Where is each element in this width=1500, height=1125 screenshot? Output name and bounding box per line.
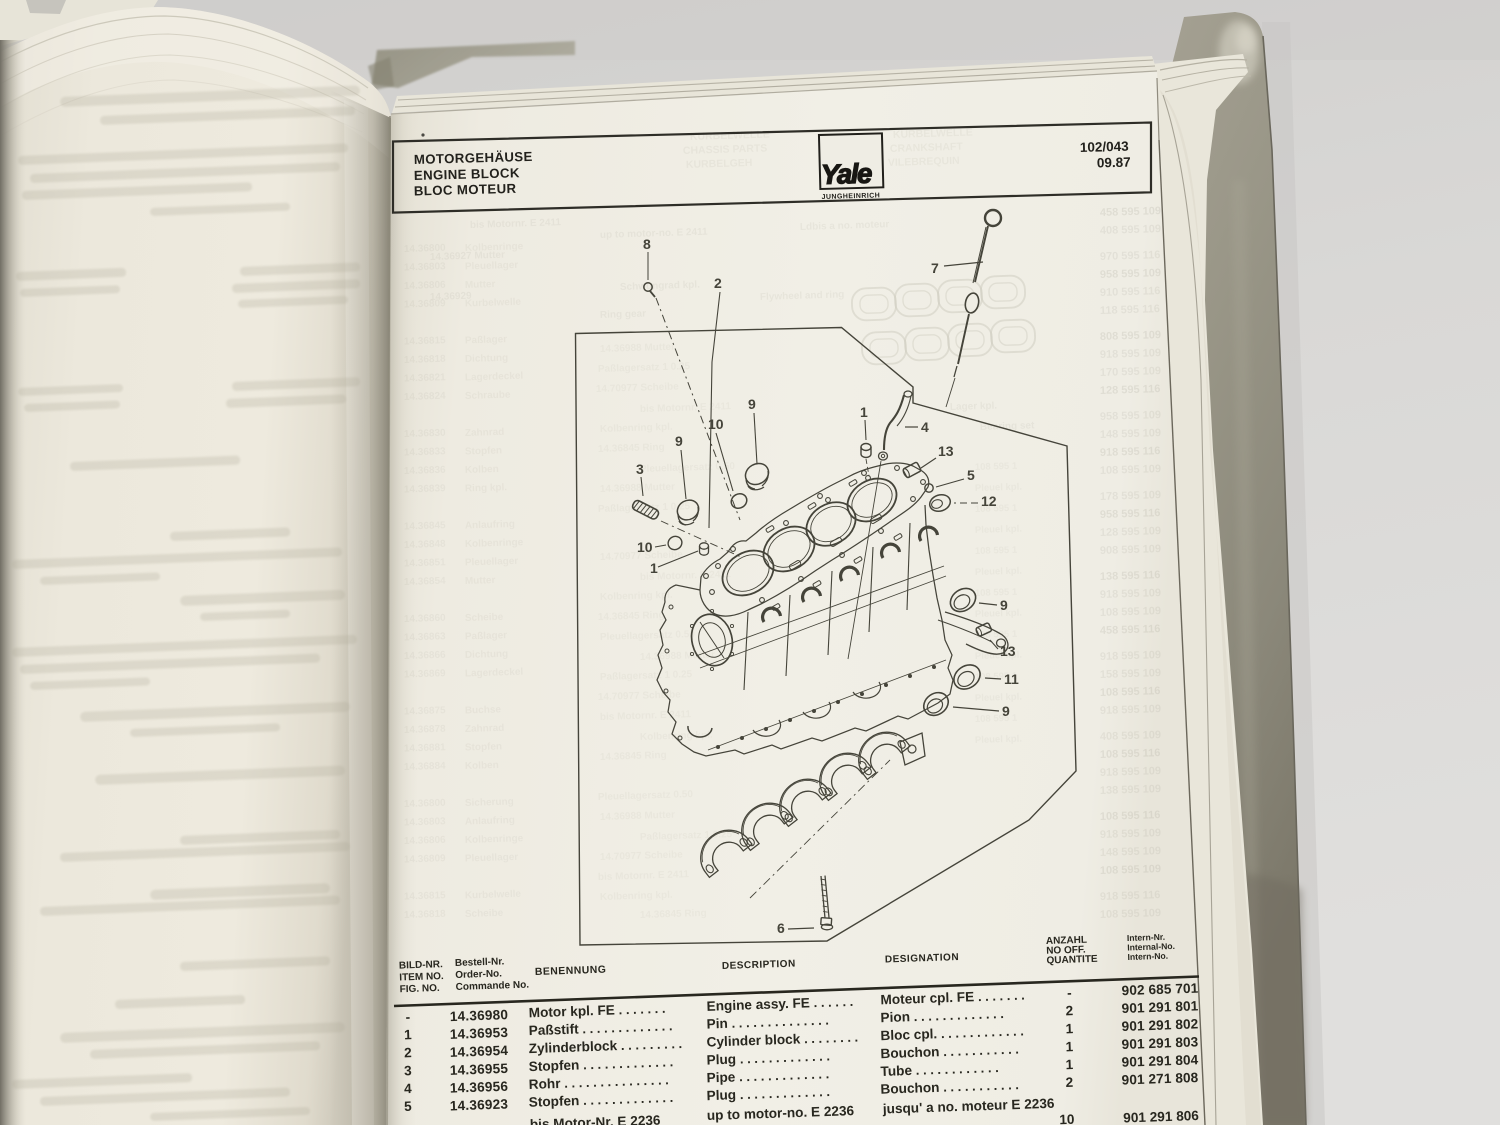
svg-text:14.36929: 14.36929 xyxy=(430,291,472,303)
svg-text:918 595 116: 918 595 116 xyxy=(1100,445,1161,459)
svg-text:9: 9 xyxy=(1000,597,1008,613)
svg-text:Scheibe: Scheibe xyxy=(465,908,504,920)
svg-text:14.36803: 14.36803 xyxy=(404,816,446,828)
svg-text:4: 4 xyxy=(404,1081,413,1096)
svg-text:Zahnrad: Zahnrad xyxy=(465,427,505,439)
svg-text:118 595 116: 118 595 116 xyxy=(1100,303,1160,317)
svg-text:Yale: Yale xyxy=(821,158,873,190)
svg-text:9: 9 xyxy=(748,396,756,412)
svg-text:14.36845 Ring: 14.36845 Ring xyxy=(600,750,667,763)
svg-text:178 595 109: 178 595 109 xyxy=(1100,489,1162,503)
svg-text:902 685 701: 902 685 701 xyxy=(1121,981,1199,999)
svg-text:908 595 109: 908 595 109 xyxy=(1100,543,1162,557)
svg-text:14.36815: 14.36815 xyxy=(404,335,446,347)
svg-text:14.36845 Ring: 14.36845 Ring xyxy=(640,908,707,921)
svg-text:108 595 1: 108 595 1 xyxy=(975,461,1018,473)
svg-text:128 595 116: 128 595 116 xyxy=(1100,383,1161,397)
svg-text:918 595 109: 918 595 109 xyxy=(1100,587,1162,601)
svg-text:14.36854: 14.36854 xyxy=(404,576,446,588)
svg-text:Kurbelwelle: Kurbelwelle xyxy=(465,889,522,902)
svg-text:14.36806: 14.36806 xyxy=(404,835,446,847)
svg-text:14.36851: 14.36851 xyxy=(404,557,446,569)
svg-text:BILD-NR.: BILD-NR. xyxy=(399,959,443,971)
svg-text:-: - xyxy=(405,1009,410,1024)
svg-text:Dichtung: Dichtung xyxy=(465,649,509,661)
svg-text:14.36818: 14.36818 xyxy=(404,909,446,921)
svg-text:108 595 109: 108 595 109 xyxy=(1100,863,1162,877)
svg-text:Pleuel kpl.: Pleuel kpl. xyxy=(975,524,1022,536)
svg-text:14.36833: 14.36833 xyxy=(404,446,446,458)
svg-text:901 291 801: 901 291 801 xyxy=(1121,998,1199,1016)
svg-text:6: 6 xyxy=(777,920,785,936)
svg-text:Lagerdeckel: Lagerdeckel xyxy=(465,371,524,384)
svg-text:Sicherung: Sicherung xyxy=(465,796,514,809)
svg-text:Anlaufring: Anlaufring xyxy=(465,519,515,532)
svg-text:1: 1 xyxy=(860,404,868,420)
svg-text:901 291 804: 901 291 804 xyxy=(1121,1052,1199,1070)
svg-text:158 595 109: 158 595 109 xyxy=(1100,667,1162,681)
svg-text:970 595 116: 970 595 116 xyxy=(1100,249,1161,263)
svg-text:918 595 109: 918 595 109 xyxy=(1100,765,1162,779)
svg-text:10: 10 xyxy=(708,416,724,432)
svg-text:Dichtung: Dichtung xyxy=(465,353,509,365)
svg-text:VILEBREQUIN: VILEBREQUIN xyxy=(888,155,960,169)
svg-text:108 595 1: 108 595 1 xyxy=(975,545,1018,557)
svg-text:958 595 109: 958 595 109 xyxy=(1100,267,1162,281)
svg-text:Lagerdeckel: Lagerdeckel xyxy=(465,667,524,680)
svg-text:09.87: 09.87 xyxy=(1097,155,1131,171)
svg-text:3: 3 xyxy=(636,461,644,477)
svg-text:108 595 1: 108 595 1 xyxy=(975,587,1018,599)
svg-text:108 595 109: 108 595 109 xyxy=(1100,605,1162,619)
svg-text:901 291 803: 901 291 803 xyxy=(1121,1034,1199,1052)
svg-text:Schraube: Schraube xyxy=(465,390,511,402)
svg-text:14.36845 Ring: 14.36845 Ring xyxy=(598,610,665,623)
svg-text:2: 2 xyxy=(1065,1003,1074,1018)
svg-text:-: - xyxy=(1067,985,1072,1000)
svg-text:14.36818: 14.36818 xyxy=(404,354,446,366)
svg-text:1: 1 xyxy=(1065,1057,1074,1072)
svg-text:Stopfen: Stopfen xyxy=(465,741,503,753)
svg-text:14.36875: 14.36875 xyxy=(404,705,446,717)
svg-text:901 291 806: 901 291 806 xyxy=(1123,1108,1199,1125)
svg-text:14.36845 Ring: 14.36845 Ring xyxy=(598,442,665,455)
svg-text:Zahnrad: Zahnrad xyxy=(465,723,505,735)
svg-text:458 595 109: 458 595 109 xyxy=(1100,205,1162,219)
svg-text:108 595 1: 108 595 1 xyxy=(975,713,1018,725)
svg-text:Pleuel kpl.: Pleuel kpl. xyxy=(975,608,1022,620)
svg-text:901 271 808: 901 271 808 xyxy=(1121,1070,1199,1088)
svg-text:14.36956: 14.36956 xyxy=(450,1079,509,1096)
svg-text:1: 1 xyxy=(1065,1039,1074,1054)
svg-text:KURBELWELLE: KURBELWELLE xyxy=(690,128,770,143)
svg-text:Lager kpl.: Lager kpl. xyxy=(950,401,998,413)
svg-text:14.36953: 14.36953 xyxy=(450,1025,509,1042)
svg-text:2: 2 xyxy=(714,275,722,291)
svg-text:Mutter: Mutter xyxy=(465,279,496,291)
svg-text:108 595 109: 108 595 109 xyxy=(1100,907,1162,921)
svg-text:Kolbenring kpl.: Kolbenring kpl. xyxy=(600,590,673,603)
svg-text:14.36869: 14.36869 xyxy=(404,668,446,680)
svg-text:408 595 109: 408 595 109 xyxy=(1100,729,1162,743)
svg-text:1: 1 xyxy=(1065,1021,1074,1036)
svg-text:Paßlager: Paßlager xyxy=(465,334,508,346)
svg-text:408 595 109: 408 595 109 xyxy=(1100,223,1162,237)
svg-text:Kolbenringe: Kolbenringe xyxy=(465,833,524,846)
svg-text:5: 5 xyxy=(404,1099,413,1114)
svg-text:138 595 116: 138 595 116 xyxy=(1100,569,1161,583)
svg-text:128 595 109: 128 595 109 xyxy=(1100,525,1162,539)
svg-text:14.36800: 14.36800 xyxy=(404,798,446,810)
svg-text:Paßlager: Paßlager xyxy=(465,630,508,642)
svg-text:4: 4 xyxy=(921,419,929,435)
svg-text:Pleuel kpl.: Pleuel kpl. xyxy=(975,734,1022,746)
svg-text:3: 3 xyxy=(404,1063,413,1078)
svg-text:10: 10 xyxy=(1059,1112,1075,1125)
svg-text:108 595 116: 108 595 116 xyxy=(1100,809,1161,823)
svg-text:458 595 116: 458 595 116 xyxy=(1100,623,1161,637)
svg-text:14.36884: 14.36884 xyxy=(404,761,446,773)
svg-text:958 595 116: 958 595 116 xyxy=(1100,507,1161,521)
svg-text:918 595 116: 918 595 116 xyxy=(1100,889,1161,903)
svg-text:Kolben: Kolben xyxy=(465,760,499,772)
svg-text:Pleuel kpl.: Pleuel kpl. xyxy=(975,566,1022,578)
svg-text:Kolbenring kpl.: Kolbenring kpl. xyxy=(600,890,673,903)
svg-text:14.36809: 14.36809 xyxy=(404,853,446,865)
svg-text:910 595 116: 910 595 116 xyxy=(1100,285,1161,299)
svg-text:918 595 109: 918 595 109 xyxy=(1100,347,1162,361)
svg-text:14.36878: 14.36878 xyxy=(404,724,446,736)
svg-text:108 595 116: 108 595 116 xyxy=(1100,685,1161,699)
svg-text:148 595 109: 148 595 109 xyxy=(1100,427,1162,441)
svg-text:108 595 109: 108 595 109 xyxy=(1100,463,1162,477)
svg-text:Pleuellager: Pleuellager xyxy=(465,556,519,569)
svg-text:1: 1 xyxy=(404,1027,413,1042)
svg-text:10: 10 xyxy=(637,539,653,555)
svg-text:Pleuellager: Pleuellager xyxy=(465,852,519,865)
svg-text:14.36824: 14.36824 xyxy=(404,391,446,403)
svg-text:Pleuel kpl.: Pleuel kpl. xyxy=(975,692,1022,704)
svg-text:14.36955: 14.36955 xyxy=(450,1061,509,1078)
svg-text:14.36815: 14.36815 xyxy=(404,890,446,902)
svg-text:Anlaufring: Anlaufring xyxy=(465,815,515,828)
svg-text:CRANKSHAFT: CRANKSHAFT xyxy=(890,141,964,155)
svg-text:14.36866: 14.36866 xyxy=(404,650,446,662)
svg-text:170 595 109: 170 595 109 xyxy=(1100,365,1162,379)
svg-text:FIG. NO.: FIG. NO. xyxy=(400,983,441,995)
svg-text:918 595 109: 918 595 109 xyxy=(1100,703,1162,717)
svg-text:918 595 109: 918 595 109 xyxy=(1100,649,1162,663)
svg-text:14.36806: 14.36806 xyxy=(404,280,446,292)
svg-text:11: 11 xyxy=(1004,671,1019,687)
svg-text:102/043: 102/043 xyxy=(1080,139,1130,155)
svg-text:Buchse: Buchse xyxy=(465,704,502,716)
svg-text:1: 1 xyxy=(650,560,658,576)
svg-text:958 595 109: 958 595 109 xyxy=(1100,409,1162,423)
svg-text:2: 2 xyxy=(404,1045,413,1060)
svg-text:Order-No.: Order-No. xyxy=(455,968,502,981)
svg-text:Ring kpl.: Ring kpl. xyxy=(465,482,508,494)
svg-text:14.36803: 14.36803 xyxy=(404,261,446,273)
svg-text:Kurbelwelle: Kurbelwelle xyxy=(465,297,522,310)
svg-text:14.36821: 14.36821 xyxy=(404,372,446,384)
svg-text:14.36830: 14.36830 xyxy=(404,428,446,440)
svg-text:14.36860: 14.36860 xyxy=(404,613,446,625)
svg-text:108 595 116: 108 595 116 xyxy=(1100,747,1161,761)
svg-text:14.36923: 14.36923 xyxy=(450,1096,509,1113)
svg-text:BLOC MOTEUR: BLOC MOTEUR xyxy=(414,181,517,199)
svg-text:2: 2 xyxy=(1065,1075,1074,1090)
svg-text:Ring gear: Ring gear xyxy=(600,309,647,321)
svg-text:8: 8 xyxy=(643,236,651,252)
svg-text:Intern-No.: Intern-No. xyxy=(1127,951,1168,962)
svg-text:QUANTITE: QUANTITE xyxy=(1046,954,1098,967)
svg-text:Kolben: Kolben xyxy=(465,464,499,476)
svg-text:Kolbenring kpl.: Kolbenring kpl. xyxy=(600,422,673,435)
svg-text:14.36980: 14.36980 xyxy=(450,1007,509,1024)
svg-text:14.36863: 14.36863 xyxy=(404,631,446,643)
svg-text:7: 7 xyxy=(931,260,939,276)
svg-text:14.36954: 14.36954 xyxy=(450,1043,509,1060)
svg-text:Stopfen: Stopfen xyxy=(465,445,503,457)
svg-text:Bestell-Nr.: Bestell-Nr. xyxy=(455,956,505,969)
svg-text:Scheibe: Scheibe xyxy=(465,612,504,624)
svg-text:Bearing set: Bearing set xyxy=(980,420,1035,433)
svg-text:9: 9 xyxy=(675,433,683,449)
svg-text:901 291 802: 901 291 802 xyxy=(1121,1016,1199,1034)
svg-text:14.36881: 14.36881 xyxy=(404,742,446,754)
svg-text:918 595 109: 918 595 109 xyxy=(1100,827,1162,841)
svg-text:13: 13 xyxy=(938,443,954,459)
svg-text:138 595 109: 138 595 109 xyxy=(1100,783,1162,797)
svg-text:808 595 109: 808 595 109 xyxy=(1100,329,1162,343)
svg-text:14.36836: 14.36836 xyxy=(404,465,446,477)
svg-text:14.36848: 14.36848 xyxy=(404,539,446,551)
svg-text:KURBELGEH: KURBELGEH xyxy=(686,157,753,171)
svg-text:9: 9 xyxy=(1002,703,1010,719)
svg-text:Mutter: Mutter xyxy=(465,575,496,587)
svg-text:148 595 109: 148 595 109 xyxy=(1100,845,1162,859)
svg-text:14.36839: 14.36839 xyxy=(404,483,446,495)
svg-text:14.36845: 14.36845 xyxy=(404,520,446,532)
svg-text:12: 12 xyxy=(981,493,997,509)
svg-text:Pleuellager: Pleuellager xyxy=(465,260,519,273)
svg-text:5: 5 xyxy=(967,467,975,483)
svg-text:MOTORGEHÄUSE: MOTORGEHÄUSE xyxy=(414,149,533,167)
svg-text:Kolbenringe: Kolbenringe xyxy=(465,537,524,550)
svg-text:ITEM NO.: ITEM NO. xyxy=(399,971,444,983)
